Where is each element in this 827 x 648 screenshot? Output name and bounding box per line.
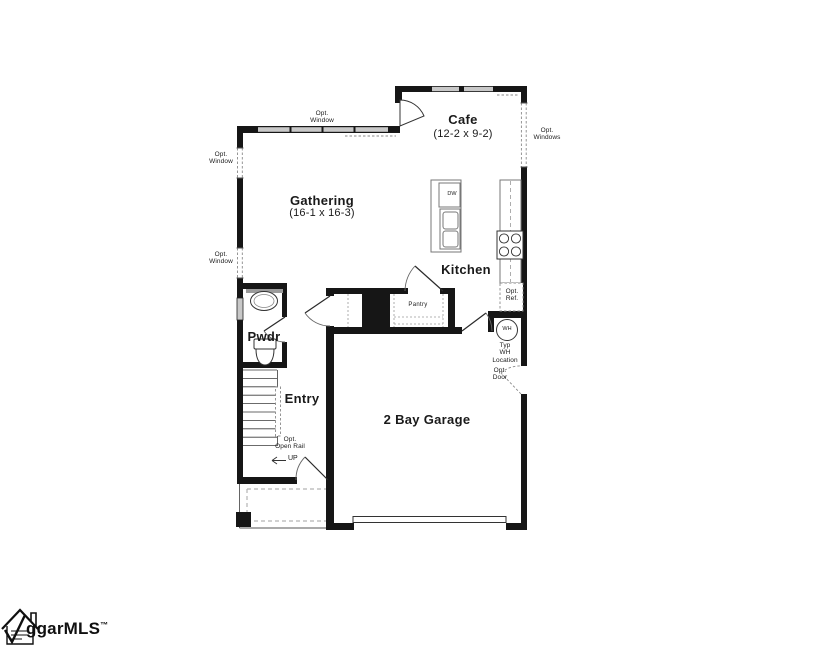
mls-logo: ggarMLS™: [26, 619, 108, 639]
porch-post: [236, 512, 251, 527]
gathering-room-label: Gathering: [290, 193, 354, 208]
corner-patio-door: [400, 100, 424, 126]
opt-window-left-upper-label: Opt. Window: [209, 151, 233, 166]
cafe-room-label: Cafe: [448, 112, 477, 127]
pwdr-sink: [246, 289, 283, 311]
garage-door: [353, 517, 506, 523]
typ-wh-location-label: Typ WH Location: [492, 342, 517, 364]
open-rail: [276, 387, 281, 436]
mls-logo-text: ggarMLS: [26, 619, 100, 638]
cafe-room-dims: (12-2 x 9-2): [433, 128, 492, 140]
optional-windows: [237, 95, 528, 278]
opt-window-left-lower-label: Opt. Window: [209, 251, 233, 266]
wh-label: WH: [502, 327, 511, 333]
garage-room-label: 2 Bay Garage: [384, 412, 471, 427]
kitchen-room-label: Kitchen: [441, 262, 491, 277]
pantry-label: Pantry: [408, 302, 427, 308]
entry-room-label: Entry: [285, 391, 320, 406]
stairs: [243, 370, 278, 446]
pwdr-room-label: Pwdr: [248, 329, 281, 344]
pantry-door: [405, 266, 443, 291]
floor-plan-linework: [0, 0, 827, 648]
opt-ref-label: Opt. Ref.: [506, 288, 519, 303]
stove: [497, 231, 523, 259]
garage-entry-door: [462, 313, 492, 331]
gathering-room-dims: (16-1 x 16-3): [289, 207, 355, 219]
porch: [236, 484, 326, 528]
opt-windows-right-label: Opt. Windows: [533, 127, 560, 142]
front-door: [296, 457, 328, 480]
up-label: UP: [288, 455, 298, 462]
mls-logo-tm: ™: [100, 620, 108, 629]
opt-open-rail-label: Opt. Open Rail: [275, 436, 305, 451]
up-arrow: [272, 457, 286, 464]
kitchen-island: [431, 180, 461, 252]
dw-label: DW: [447, 192, 456, 198]
opt-window-top-label: Opt. Window: [310, 110, 334, 125]
floor-plan-canvas: Gathering (16-1 x 16-3) Cafe (12-2 x 9-2…: [0, 0, 827, 648]
opt-door-label: Opt. Door: [493, 367, 508, 382]
island-sink: [440, 209, 460, 249]
hall-closet-door: [305, 296, 330, 326]
